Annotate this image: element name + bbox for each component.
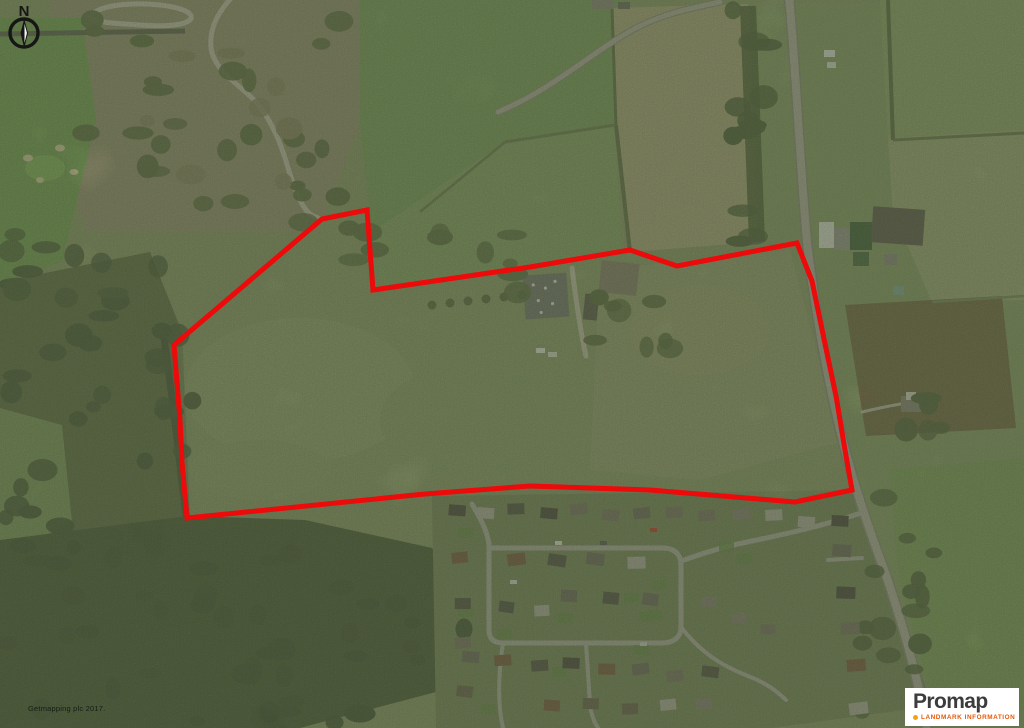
map-attribution: Getmapping plc 2017.: [28, 704, 105, 713]
landmark-row: LANDMARK INFORMATION: [913, 714, 1019, 721]
map-canvas: N Getmapping plc 2017. Promap LANDMARK I…: [0, 0, 1024, 728]
aerial-photo: [0, 0, 1024, 728]
photo-grain-overlay: [0, 0, 1024, 728]
landmark-information-label: LANDMARK INFORMATION: [921, 714, 1015, 721]
landmark-dot-icon: [913, 715, 918, 720]
promap-logo: Promap LANDMARK INFORMATION: [905, 688, 1019, 726]
promap-wordmark: Promap: [913, 690, 1019, 713]
compass-needle-icon: [21, 20, 28, 47]
compass-rose: N: [0, 0, 52, 58]
